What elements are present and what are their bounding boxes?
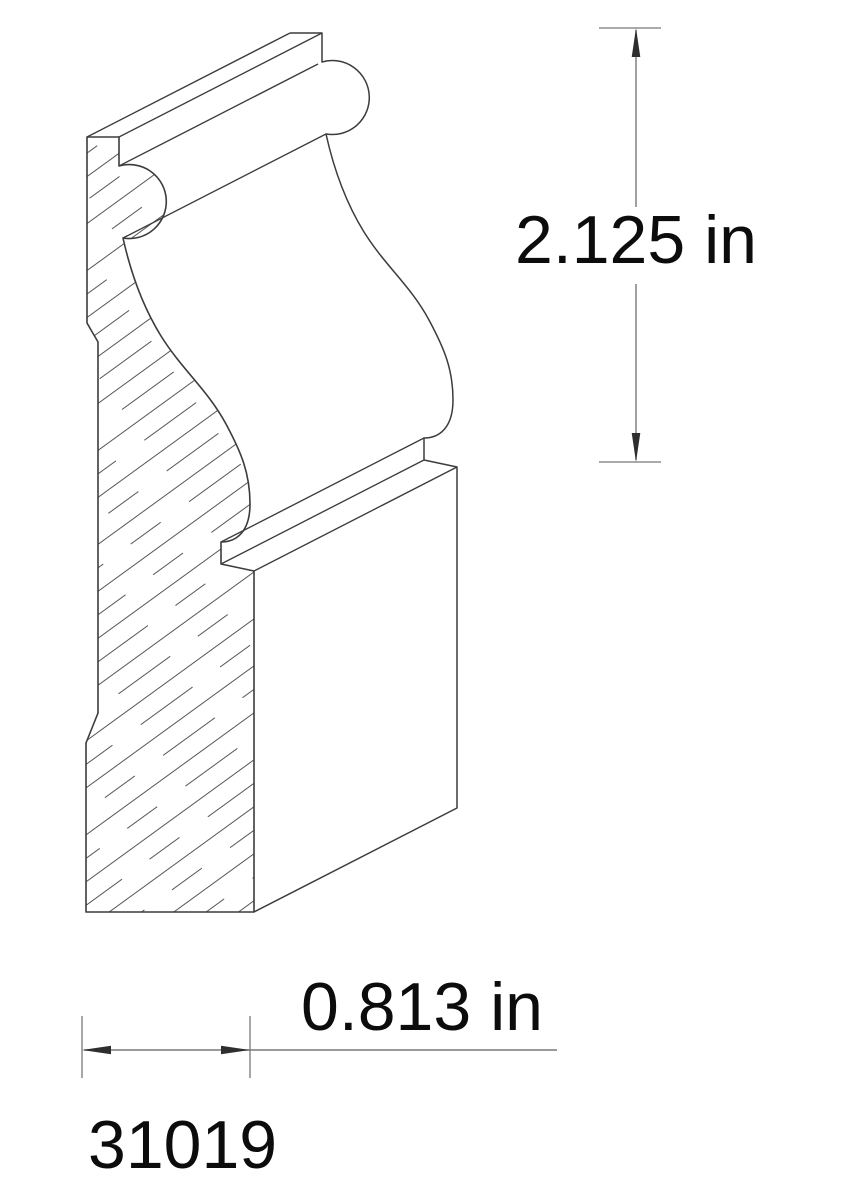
dimension-arrowhead-up [632, 28, 641, 57]
width-dimension-label: 0.813 in [301, 973, 543, 1041]
technical-drawing-page: 2.125 in 0.813 in 31019 [0, 0, 850, 1200]
extrusion-edge-fillet-top [221, 438, 424, 542]
extrusion-edge-fillet-bottom [221, 460, 424, 564]
dimension-arrowhead-right [221, 1046, 250, 1055]
height-dimension-label: 2.125 in [515, 206, 757, 274]
extrusion-edge-ledge [254, 467, 457, 571]
extrusion-edge-step [119, 64, 318, 166]
extrusion-edge-top-left [87, 33, 290, 137]
dimension-arrowhead-left [82, 1046, 111, 1055]
cross-section-face [86, 137, 254, 912]
part-number-label: 31019 [88, 1111, 277, 1179]
extrusion-edge-top-right [119, 33, 322, 137]
dimension-arrowhead-down [632, 433, 641, 462]
